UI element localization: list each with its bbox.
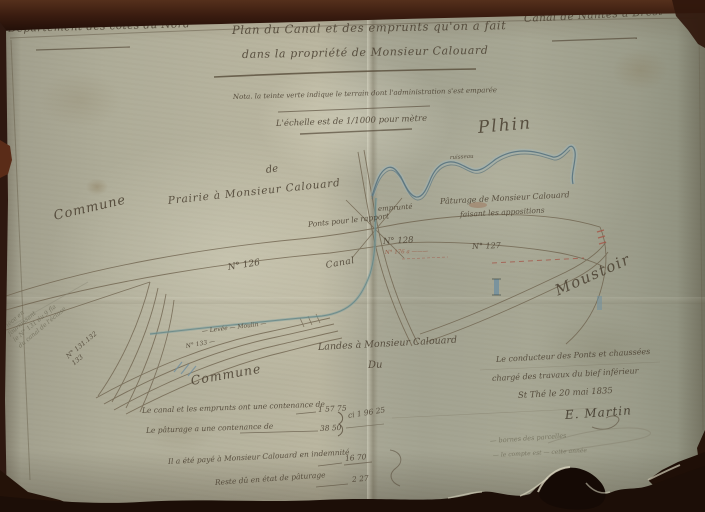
canal-area-value: 1 57 75 <box>318 405 347 414</box>
parcel-number-128: N° 128 <box>383 236 414 246</box>
de-label: de <box>265 164 279 176</box>
paturage-area-value: 38 50 <box>320 424 342 433</box>
place-name-north: Plhin <box>477 115 532 137</box>
horizontal-fold-crease <box>0 297 705 304</box>
photo-of-old-map: Département des côtes du Nord Canal de N… <box>0 0 705 512</box>
parcel-number-127: N° 127 <box>472 242 501 251</box>
rest-due-value: 2 27 <box>352 475 369 484</box>
du-label: Du <box>368 360 383 370</box>
indemnity-paid-value: 16 70 <box>345 453 367 462</box>
vertical-fold-crease <box>367 0 378 512</box>
